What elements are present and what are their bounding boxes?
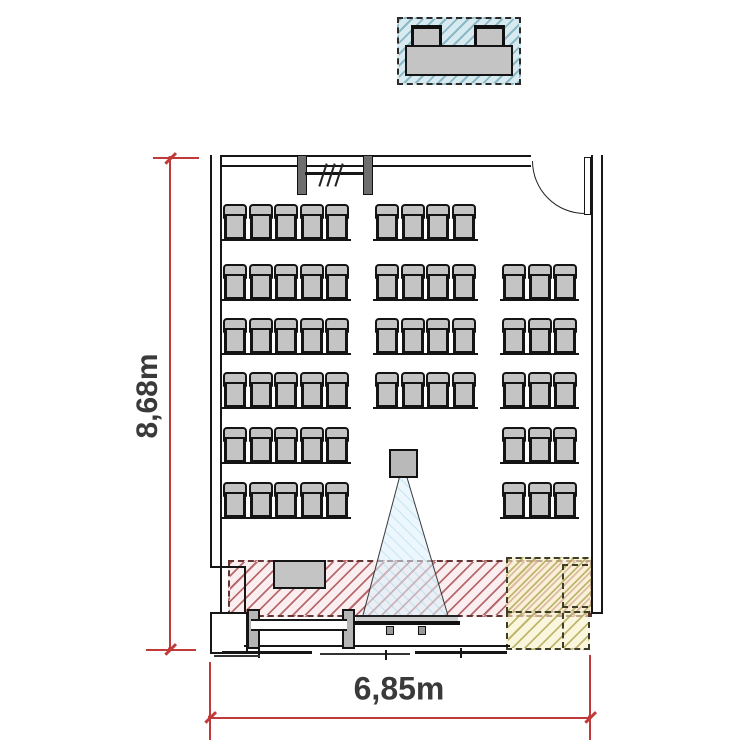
dim-dot-bottom [168,647,172,651]
chair [274,264,298,299]
chair-seat [301,274,323,299]
chair-seat [427,382,449,407]
chair [528,264,552,299]
chair-seat [402,214,424,239]
chair [300,372,324,407]
chair [249,427,273,462]
seat-row-rail [500,517,579,519]
chair-seat [224,274,246,299]
dim-label-height: 8,68m [131,353,165,438]
seat-row-rail [500,299,579,301]
chair-seat [453,328,475,353]
chair-seat [503,274,525,299]
chair [274,427,298,462]
chair-seat [529,492,551,517]
chair [223,482,247,517]
chair-seat [301,382,323,407]
chair [502,264,526,299]
chair [300,427,324,462]
chair-seat [503,382,525,407]
chair-seat [250,274,272,299]
seat-group-r3-g1 [223,318,349,353]
seat-group-r6-g2 [502,482,577,517]
chair [528,372,552,407]
chair-seat [326,328,348,353]
seat-row-rail [221,407,351,409]
chair [249,264,273,299]
chair [553,482,577,517]
chair-seat [554,274,576,299]
chair-seat [275,328,297,353]
chair-seat [402,382,424,407]
chair-seat [453,214,475,239]
seat-group-r2-g3 [502,264,577,299]
chair [325,482,349,517]
chair [249,482,273,517]
seat-row-rail [221,517,351,519]
chair [249,204,273,239]
chair-seat [427,214,449,239]
chair [300,204,324,239]
chair [553,264,577,299]
chair-seat [453,274,475,299]
chair [528,482,552,517]
chair-seat [275,437,297,462]
chair-seat [301,492,323,517]
dim-ext-left [209,662,211,740]
chair [452,318,476,353]
chair-seat [427,328,449,353]
chair [300,318,324,353]
chair [426,318,450,353]
chair [452,372,476,407]
seat-row-rail [221,462,351,464]
projector [389,449,418,478]
chair [452,264,476,299]
chair-seat [224,492,246,517]
chair-seat [326,437,348,462]
chair-seat [224,328,246,353]
chair-seat [224,382,246,407]
dim-line-horizontal [210,717,591,719]
seat-row-rail [373,299,478,301]
dim-line-vertical [169,158,171,650]
dim-label-width: 6,85m [354,671,445,708]
seat-row-rail [500,462,579,464]
screen-bottom-rail [354,621,460,625]
chair-seat [554,437,576,462]
chair [249,372,273,407]
chair-seat [529,382,551,407]
seat-row-rail [500,407,579,409]
dim-dot-right [588,715,592,719]
chair [274,372,298,407]
seat-row-rail [373,407,478,409]
chair [223,318,247,353]
chair [401,318,425,353]
chair [528,427,552,462]
chair-seat [554,382,576,407]
screen-foot-2 [418,626,426,635]
chair [375,204,399,239]
chair-seat [402,274,424,299]
chair [274,318,298,353]
seat-group-r4-g1 [223,372,349,407]
chair-seat [224,214,246,239]
seat-group-r1-g1 [223,204,349,239]
seat-row-rail [221,353,351,355]
dim-dot-left [208,715,212,719]
dim-ext-right [589,655,591,740]
chair [325,264,349,299]
floor-plan: 8,68m 6,85m [0,0,750,749]
chair-seat [554,492,576,517]
seat-group-r5-g2 [502,427,577,462]
chair [502,318,526,353]
chair-seat [250,328,272,353]
chair-seat [453,382,475,407]
chair [426,264,450,299]
chair [325,318,349,353]
chair-seat [326,382,348,407]
chair [223,264,247,299]
seat-group-r5-g1 [223,427,349,462]
chair [325,427,349,462]
chair [300,482,324,517]
chair-seat [250,382,272,407]
seat-row-rail [373,353,478,355]
chair-seat [301,328,323,353]
chair-seat [250,214,272,239]
chair-seat [376,328,398,353]
seat-group-r3-g2 [375,318,476,353]
chair [401,204,425,239]
chair-seat [529,437,551,462]
chair-seat [326,492,348,517]
chair [223,427,247,462]
chair [553,372,577,407]
chair-seat [326,214,348,239]
seat-group-r3-g3 [502,318,577,353]
chair-seat [427,274,449,299]
chair-seat [250,437,272,462]
chair [502,482,526,517]
chair [274,482,298,517]
dim-ext-top [153,157,199,159]
chair-seat [554,328,576,353]
chair-seat [301,437,323,462]
chair [401,264,425,299]
chair [401,372,425,407]
chair-seat [376,214,398,239]
chair-seat [529,274,551,299]
seat-group-r4-g2 [375,372,476,407]
seat-row-rail [221,239,351,241]
seat-group-r6-g1 [223,482,349,517]
chair [274,204,298,239]
seat-row-rail [500,353,579,355]
screen-foot-1 [386,626,394,635]
chair-seat [301,214,323,239]
chair-seat [402,328,424,353]
projection-screen [354,615,460,635]
seat-group-r2-g1 [223,264,349,299]
chair [426,204,450,239]
chair [502,372,526,407]
chair [502,427,526,462]
chair-seat [250,492,272,517]
chair [553,427,577,462]
chair [426,372,450,407]
chair [223,372,247,407]
whiteboard-board [251,619,347,631]
chair [375,264,399,299]
chair [375,318,399,353]
chair-seat [224,437,246,462]
chair-seat [275,382,297,407]
chair [223,204,247,239]
chair-seat [326,274,348,299]
chair-seat [503,492,525,517]
chair-seat [503,328,525,353]
chair-seat [529,328,551,353]
chair [528,318,552,353]
dim-dot-top [168,156,172,160]
chair [300,264,324,299]
teacher-desk [273,560,326,589]
chair [325,372,349,407]
chair [452,204,476,239]
chair [249,318,273,353]
chair [325,204,349,239]
chair-seat [275,214,297,239]
chair-seat [275,492,297,517]
chair [375,372,399,407]
seat-group-r2-g2 [375,264,476,299]
seating-area [0,0,750,749]
chair-seat [376,382,398,407]
chair-seat [503,437,525,462]
seat-group-r4-g3 [502,372,577,407]
chair [553,318,577,353]
seat-group-r1-g2 [375,204,476,239]
seat-row-rail [221,299,351,301]
chair-seat [376,274,398,299]
chair-seat [275,274,297,299]
seat-row-rail [373,239,478,241]
